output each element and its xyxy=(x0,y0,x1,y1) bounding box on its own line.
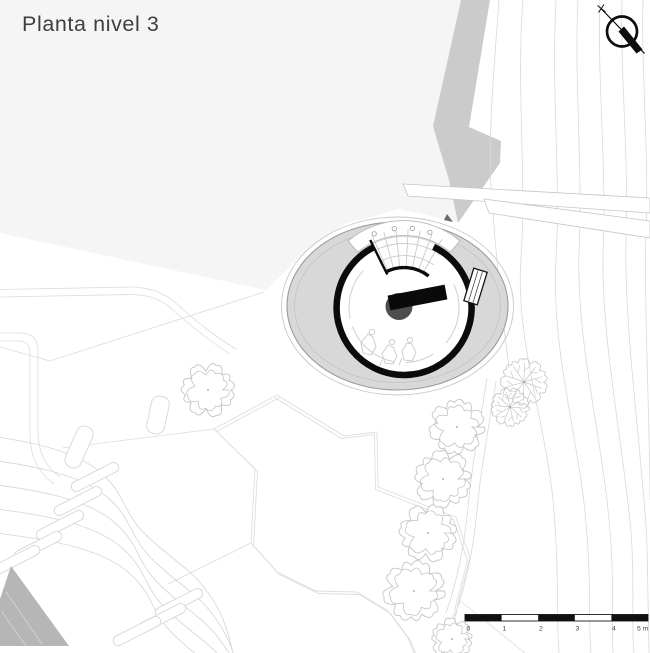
scale-bar-label: 2 xyxy=(539,626,543,633)
tree xyxy=(399,505,456,562)
scale-bar-label: 5 m xyxy=(637,626,649,633)
site-plan-drawing: 0 1 2 3 4 5 m xyxy=(0,0,650,653)
tree xyxy=(500,359,547,406)
tree xyxy=(429,399,485,454)
scale-bar-segments xyxy=(465,615,648,622)
tree xyxy=(181,364,234,417)
dark-wedge xyxy=(0,566,69,646)
tree xyxy=(383,560,446,620)
scale-bar: 0 1 2 3 4 5 m xyxy=(465,615,649,633)
tree xyxy=(432,618,472,653)
terrain-contour-lines xyxy=(490,0,650,653)
scale-bar-label: 0 xyxy=(467,626,471,633)
floor-plan-sheet: 0 1 2 3 4 5 m Planta nivel 3 xyxy=(0,0,650,653)
trees-group xyxy=(181,359,547,653)
tree xyxy=(415,450,471,508)
page-title: Planta nivel 3 xyxy=(22,12,159,37)
scale-bar-label: 4 xyxy=(612,626,616,633)
scale-bar-label: 1 xyxy=(503,626,507,633)
compass-north-icon xyxy=(598,5,645,54)
scale-bar-label: 3 xyxy=(576,626,580,633)
tree xyxy=(491,388,530,426)
